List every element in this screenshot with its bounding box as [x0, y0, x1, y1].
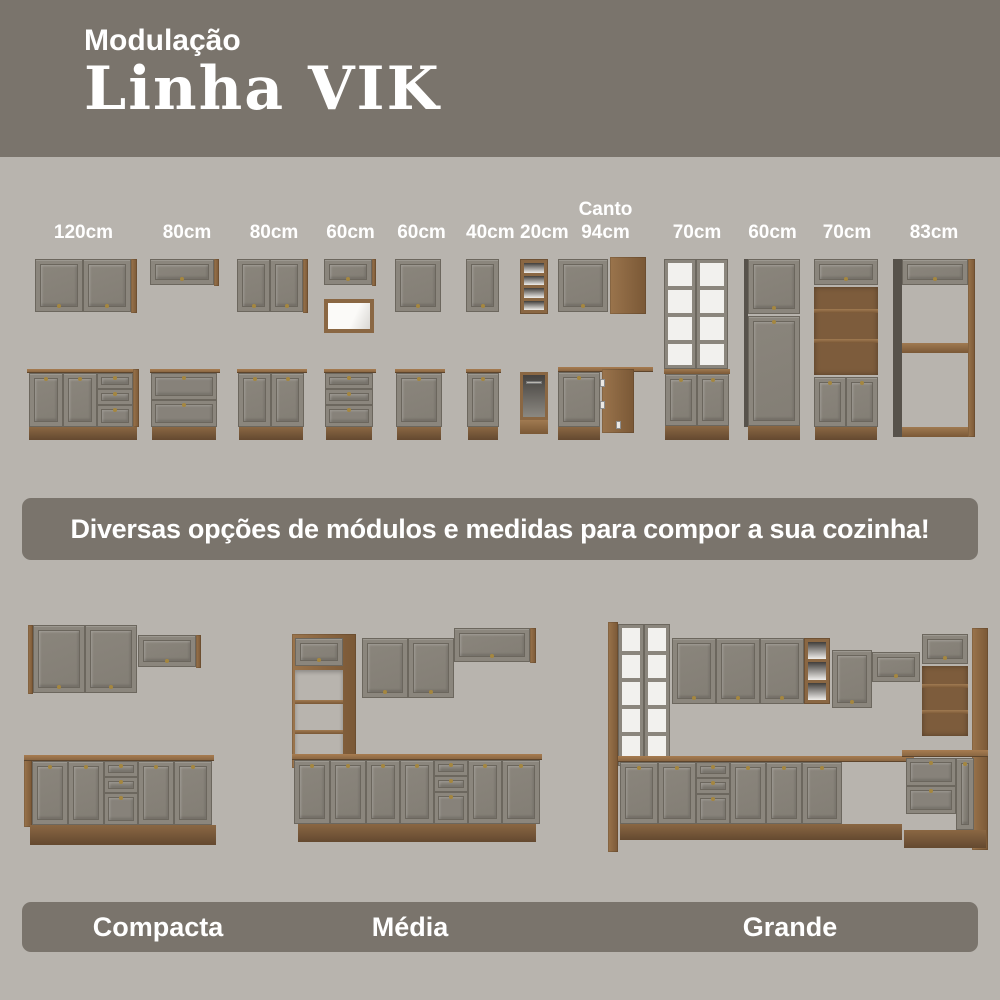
open-shelf-column — [804, 638, 830, 704]
wall-cabinet-door — [408, 638, 454, 698]
drawer — [434, 792, 468, 824]
kitchen-label-media: Média — [335, 902, 485, 952]
base-cabinet-door — [730, 762, 766, 824]
wood-plinth — [239, 427, 303, 440]
wood-side-panel — [303, 259, 308, 313]
module-figure-80cm-flip — [150, 259, 224, 440]
wood-plinth — [904, 830, 986, 848]
module-figure-83cm-fridge-tower — [893, 259, 975, 440]
module-size-label: 80cm — [237, 222, 311, 244]
mid-banner-text: Diversas opções de módulos e medidas par… — [22, 498, 978, 560]
glass-door — [618, 624, 644, 766]
wall-cabinet-door — [270, 259, 303, 312]
corner-base-door — [558, 372, 600, 427]
base-cabinet-door — [846, 377, 878, 427]
wood-shelf — [814, 339, 878, 343]
wood-plinth — [815, 427, 877, 440]
open-niche — [324, 299, 374, 333]
wall-cabinet-door — [237, 259, 270, 312]
base-cabinet-door — [502, 760, 540, 824]
base-cabinet-door — [238, 373, 271, 427]
base-cabinet-door — [330, 760, 366, 824]
page: Modulação Linha VIK 120cm 80cm 80cm 60cm… — [0, 0, 1000, 1000]
open-appliance-niche — [814, 287, 878, 375]
drawer — [906, 786, 956, 814]
kitchen-figure-media — [292, 612, 562, 852]
wood-side-panel — [972, 628, 988, 850]
wall-cabinet-door — [466, 259, 499, 312]
kitchen-sizes-banner: Compacta Média Grande — [22, 902, 978, 952]
drawer — [696, 762, 730, 778]
kitchen-label-grande: Grande — [715, 902, 865, 952]
module-figure-70cm-glass-tower — [664, 259, 730, 440]
wood-side-panel — [196, 635, 201, 668]
module-figure-20cm — [520, 259, 550, 445]
wood-side-panel — [530, 628, 536, 663]
module-size-label: 70cm — [664, 222, 730, 244]
tower-wood-carcass — [608, 622, 618, 852]
wood-plinth — [152, 427, 216, 440]
module-size-label: 40cm — [466, 222, 502, 244]
base-cabinet-door — [814, 377, 846, 427]
flip-up-door — [138, 635, 196, 667]
dark-side-panel — [893, 259, 902, 437]
corner-wall-door — [558, 259, 608, 312]
pantry-door — [748, 259, 800, 314]
wood-plinth — [558, 427, 600, 440]
wall-cabinet-door — [362, 638, 408, 698]
module-size-label: 20cm — [520, 222, 550, 244]
flip-up-door — [295, 638, 343, 666]
drawer — [906, 758, 956, 786]
kitchen-label-compacta: Compacta — [58, 902, 258, 952]
open-appliance-niche — [922, 666, 968, 736]
drawer — [97, 405, 133, 427]
module-size-label: 83cm — [893, 222, 975, 244]
corner-base-door — [802, 762, 842, 824]
wood-plinth — [748, 426, 800, 440]
header-banner: Modulação Linha VIK — [0, 0, 1000, 157]
flip-up-door — [922, 634, 968, 664]
canto-label-line2: 94cm — [558, 221, 653, 244]
kitchen-figure-compacta — [20, 615, 270, 850]
header-subtitle: Modulação — [84, 24, 241, 58]
wood-side-panel — [133, 369, 139, 427]
wood-shelf — [902, 343, 968, 353]
wood-plinth — [665, 426, 729, 440]
drawer — [151, 373, 217, 400]
wood-plinth — [620, 824, 902, 840]
wood-base-bar — [902, 427, 968, 437]
wood-shelf — [814, 309, 878, 313]
wood-side-panel — [131, 259, 137, 313]
canto-label-line1: Canto — [558, 198, 653, 221]
base-cabinet-door — [63, 373, 97, 427]
base-cabinet-door — [396, 373, 442, 427]
drawer — [325, 405, 373, 427]
base-cabinet-door — [620, 762, 658, 824]
drawer — [325, 373, 373, 389]
wall-cabinet-door — [716, 638, 760, 704]
base-cabinet-door — [138, 761, 174, 825]
module-size-label: 120cm — [27, 222, 140, 244]
kitchen-figure-grande — [600, 610, 990, 855]
module-figure-120cm — [27, 259, 140, 440]
tower-open-niche — [295, 670, 343, 766]
glass-door — [644, 624, 670, 766]
module-size-label: 80cm — [150, 222, 224, 244]
module-figure-80cm-doors — [237, 259, 311, 440]
module-figure-60cm-niche — [324, 259, 377, 440]
drawer — [696, 778, 730, 794]
base-cabinet-door — [697, 374, 729, 426]
wood-side-panel — [214, 259, 219, 286]
drawer — [325, 389, 373, 405]
header-title: Linha VIK — [84, 54, 441, 124]
wood-base-drawer — [520, 420, 548, 434]
flip-up-door — [902, 259, 968, 285]
drawer — [97, 373, 133, 389]
drawer — [104, 793, 138, 825]
base-cabinet-door — [665, 374, 697, 426]
wall-cabinet-door — [83, 259, 131, 312]
flip-up-door — [454, 628, 530, 662]
wall-cabinet-door — [832, 650, 872, 708]
base-cabinet-door — [174, 761, 212, 825]
wood-plinth — [30, 825, 216, 845]
drawer — [104, 761, 138, 777]
glass-door — [664, 259, 696, 369]
flip-up-door — [814, 259, 878, 285]
base-cabinet-door — [366, 760, 400, 824]
wood-plinth — [468, 427, 498, 440]
module-size-label: 60cm — [324, 222, 377, 244]
wood-shelf — [295, 730, 343, 734]
wood-side-panel — [968, 259, 975, 437]
base-cabinet-door — [468, 760, 502, 824]
base-cabinet-door — [467, 373, 499, 427]
flip-up-door — [324, 259, 372, 285]
base-cabinet-door — [29, 373, 63, 427]
open-base-unit — [520, 372, 548, 420]
mid-banner: Diversas opções de módulos e medidas par… — [22, 498, 978, 560]
module-size-label: 60cm — [744, 222, 801, 244]
wood-shelf — [295, 700, 343, 704]
module-size-label: 60cm — [395, 222, 448, 244]
glass-door — [696, 259, 728, 369]
module-figure-canto-94cm — [558, 259, 653, 440]
wall-cabinet-door — [395, 259, 441, 312]
module-size-label: 70cm — [814, 222, 880, 244]
drawer — [434, 760, 468, 776]
wall-cabinet-door — [85, 625, 137, 693]
base-cabinet-door — [956, 758, 974, 830]
wood-plinth — [397, 427, 441, 440]
base-cabinet-door — [294, 760, 330, 824]
flip-up-door — [150, 259, 214, 285]
countertop — [902, 750, 988, 757]
drawer — [97, 389, 133, 405]
wood-shelf — [922, 684, 968, 688]
hinge — [600, 379, 605, 387]
hinge — [616, 421, 621, 429]
module-size-label-canto: Canto 94cm — [558, 198, 653, 244]
base-cabinet-door — [32, 761, 68, 825]
base-cabinet-door — [766, 762, 802, 824]
module-figure-70cm-oven-tower — [814, 259, 880, 440]
wall-cabinet-door — [33, 625, 85, 693]
wood-plinth — [29, 427, 137, 440]
wall-cabinet-door — [672, 638, 716, 704]
wall-cabinet-door — [35, 259, 83, 312]
wood-side-panel — [372, 259, 376, 286]
base-cabinet-door — [68, 761, 104, 825]
open-shelf-column — [520, 259, 548, 314]
towel-rail — [526, 381, 542, 384]
module-figure-40cm — [466, 259, 502, 440]
wood-plinth — [326, 427, 372, 440]
wood-end-panel — [24, 755, 32, 827]
drawer — [104, 777, 138, 793]
hinge — [600, 401, 605, 409]
drawer — [151, 400, 217, 427]
pantry-door — [748, 316, 800, 426]
base-cabinet-door — [658, 762, 696, 824]
drawer — [434, 776, 468, 792]
module-figure-60cm-pantry-tower — [744, 259, 801, 440]
flip-up-door — [872, 652, 920, 682]
corner-wood-box — [610, 257, 646, 314]
drawer — [696, 794, 730, 824]
base-cabinet-door — [271, 373, 304, 427]
wall-cabinet-door — [760, 638, 804, 704]
wood-plinth — [298, 824, 536, 842]
wood-shelf — [922, 710, 968, 714]
base-cabinet-door — [400, 760, 434, 824]
module-figure-60cm-door — [395, 259, 448, 440]
